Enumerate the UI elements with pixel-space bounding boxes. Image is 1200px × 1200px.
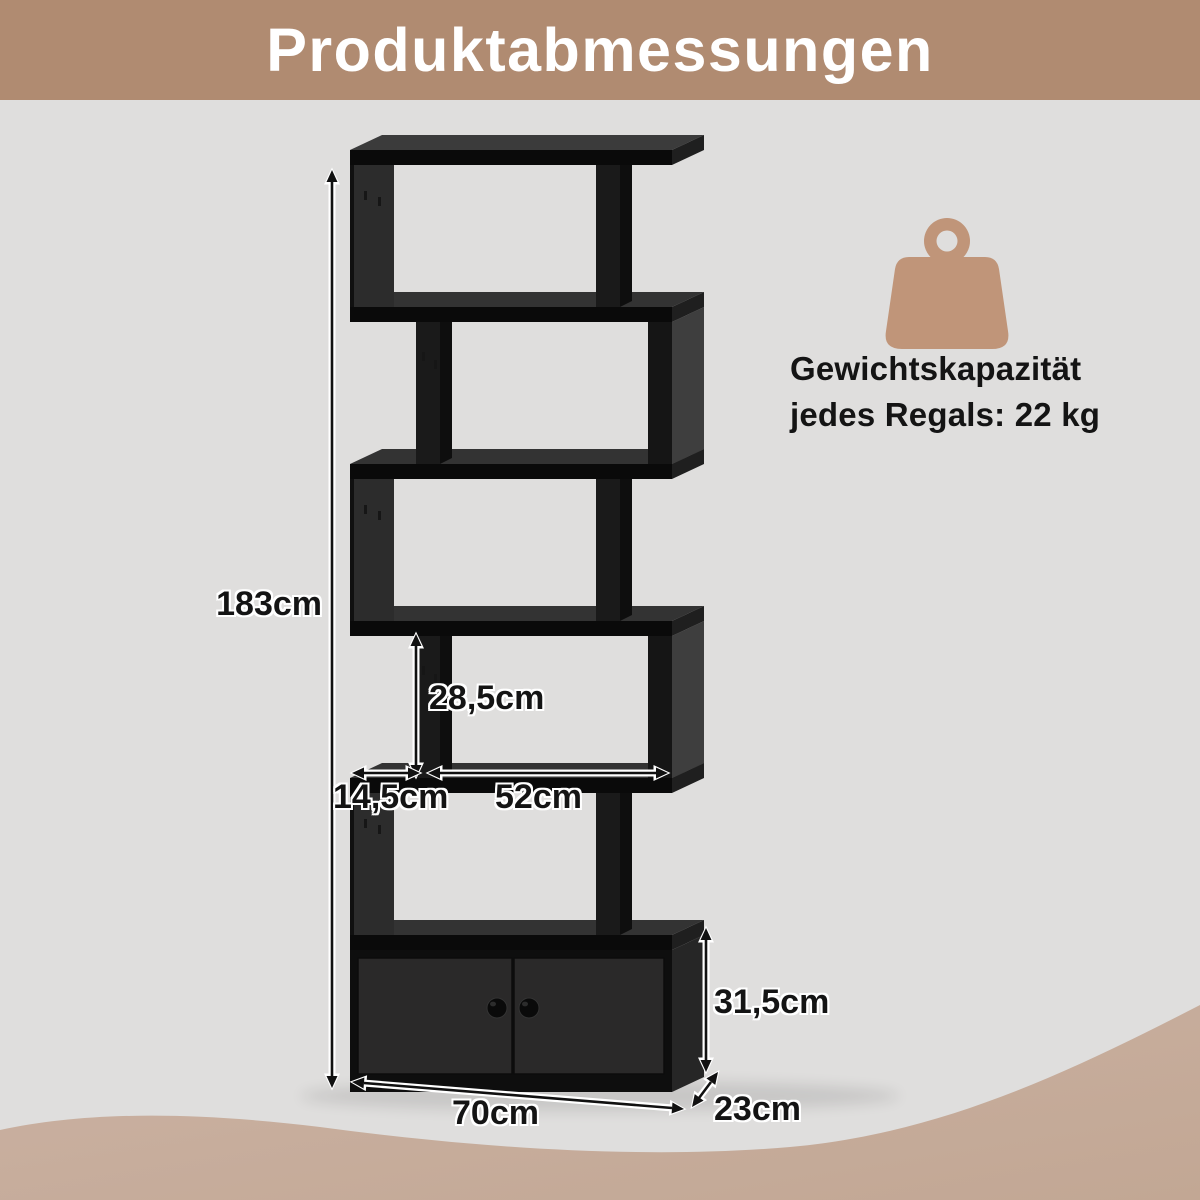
- tier2-verticals: [416, 307, 704, 464]
- dimension-label-cabinet-height: 31,5cm: [714, 985, 829, 1019]
- tier1-verticals: [350, 159, 632, 307]
- dimension-label-opening-width: 52cm: [495, 780, 582, 814]
- cabinet: [350, 935, 704, 1092]
- door-knob-left: [487, 998, 507, 1018]
- bookshelf-illustration: [350, 135, 704, 1092]
- dimension-label-total-height: 183cm: [180, 587, 322, 621]
- weight-capacity-line2: jedes Regals: 22 kg: [790, 392, 1100, 438]
- dimension-label-side-offset: 14,5cm: [333, 780, 448, 814]
- dimension-label-total-width: 70cm: [452, 1096, 539, 1130]
- header-banner: Produktabmessungen: [0, 0, 1200, 100]
- dimension-label-depth: 23cm: [714, 1092, 801, 1126]
- dimension-label-inner-height: 28,5cm: [429, 681, 544, 715]
- shelf-board-front-faces: [350, 135, 704, 950]
- tier3-verticals: [350, 473, 632, 621]
- product-dimensions-infographic: Produktabmessungen: [0, 0, 1200, 1200]
- weight-capacity-caption: Gewichtskapazität jedes Regals: 22 kg: [790, 346, 1100, 438]
- weight-icon: [886, 218, 1009, 349]
- cabinet-door-right: [514, 958, 664, 1074]
- cabinet-door-left: [358, 958, 512, 1074]
- arrow-total-height: [324, 168, 340, 1091]
- weight-capacity-line1: Gewichtskapazität: [790, 346, 1100, 392]
- door-knob-right: [519, 998, 539, 1018]
- page-title: Produktabmessungen: [266, 15, 934, 85]
